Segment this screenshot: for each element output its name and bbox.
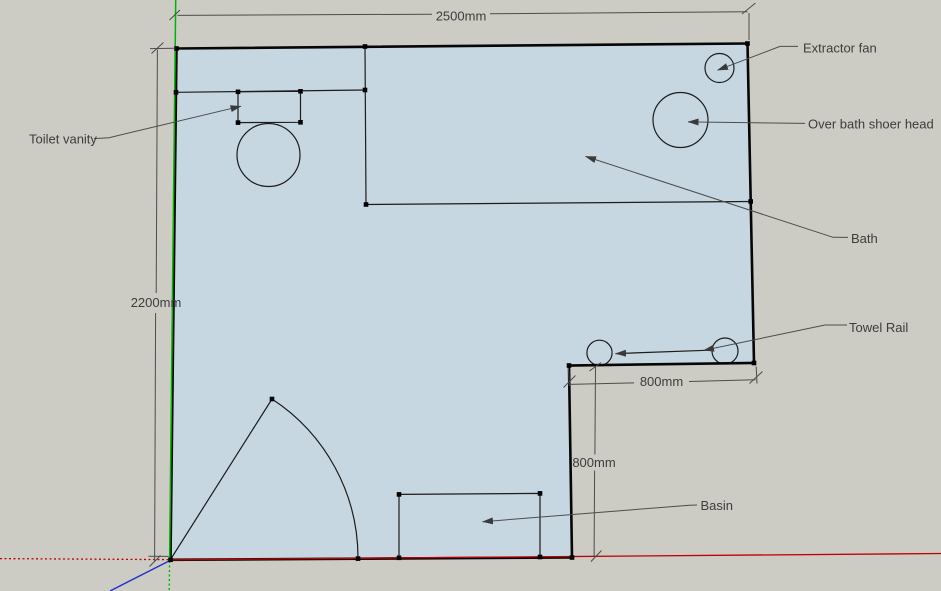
label-towel-rail[interactable]: Towel Rail	[849, 320, 908, 335]
dim-text-room-height[interactable]: 2200mm	[131, 295, 182, 310]
dimension-room-width[interactable]: 2500mm	[170, 3, 756, 40]
drawing-canvas[interactable]: 2500mm 2200mm 800mm 800mm	[0, 0, 941, 591]
vertex-dot	[236, 120, 241, 125]
dim-line	[490, 12, 748, 14]
label-shower-head[interactable]: Over bath shoer head	[808, 117, 934, 132]
dim-tick	[750, 372, 763, 384]
vertex-dot	[363, 88, 368, 93]
label-basin[interactable]: Basin	[701, 498, 734, 513]
room-floor[interactable]	[171, 44, 755, 560]
dim-line	[689, 380, 756, 382]
dim-line	[178, 14, 433, 15]
dim-line	[570, 383, 634, 385]
vertex-dot	[298, 120, 303, 125]
vertex-dot	[538, 555, 543, 560]
vertex-dot	[567, 363, 572, 368]
vertex-dot	[363, 44, 368, 49]
vertex-dot	[364, 202, 369, 207]
blue-axis-solid	[110, 560, 171, 591]
dim-line	[156, 50, 157, 294]
dim-text-notch-width[interactable]: 800mm	[640, 374, 683, 389]
vertex-dot	[174, 90, 179, 95]
sketchup-viewport: 2500mm 2200mm 800mm 800mm	[0, 0, 941, 591]
vertex-dot	[236, 90, 241, 95]
dim-line	[595, 367, 596, 455]
dim-tick	[742, 3, 756, 14]
dim-extension	[756, 367, 757, 384]
vertex-dot	[745, 41, 750, 46]
vertex-dot	[397, 556, 402, 561]
dim-text-notch-depth[interactable]: 800mm	[572, 455, 615, 470]
red-axis-dotted	[0, 559, 168, 560]
label-bath[interactable]: Bath	[851, 231, 878, 246]
dimension-notch-width[interactable]: 800mm	[564, 367, 763, 390]
vertex-dot	[752, 361, 757, 366]
vertex-dot	[570, 555, 575, 560]
label-toilet-vanity[interactable]: Toilet vanity	[29, 132, 97, 147]
label-extractor-fan[interactable]: Extractor fan	[803, 41, 877, 56]
dim-text-room-width[interactable]: 2500mm	[436, 9, 487, 24]
vertex-dot	[270, 397, 275, 402]
vertex-dot	[538, 491, 543, 496]
vertex-dot	[397, 492, 402, 497]
vertex-dot	[748, 199, 753, 204]
vertex-dot	[356, 556, 361, 561]
vertex-dot	[298, 89, 303, 94]
vertex-dot	[168, 558, 173, 563]
dim-line	[155, 313, 156, 562]
dimension-notch-depth[interactable]: 800mm	[572, 363, 615, 562]
